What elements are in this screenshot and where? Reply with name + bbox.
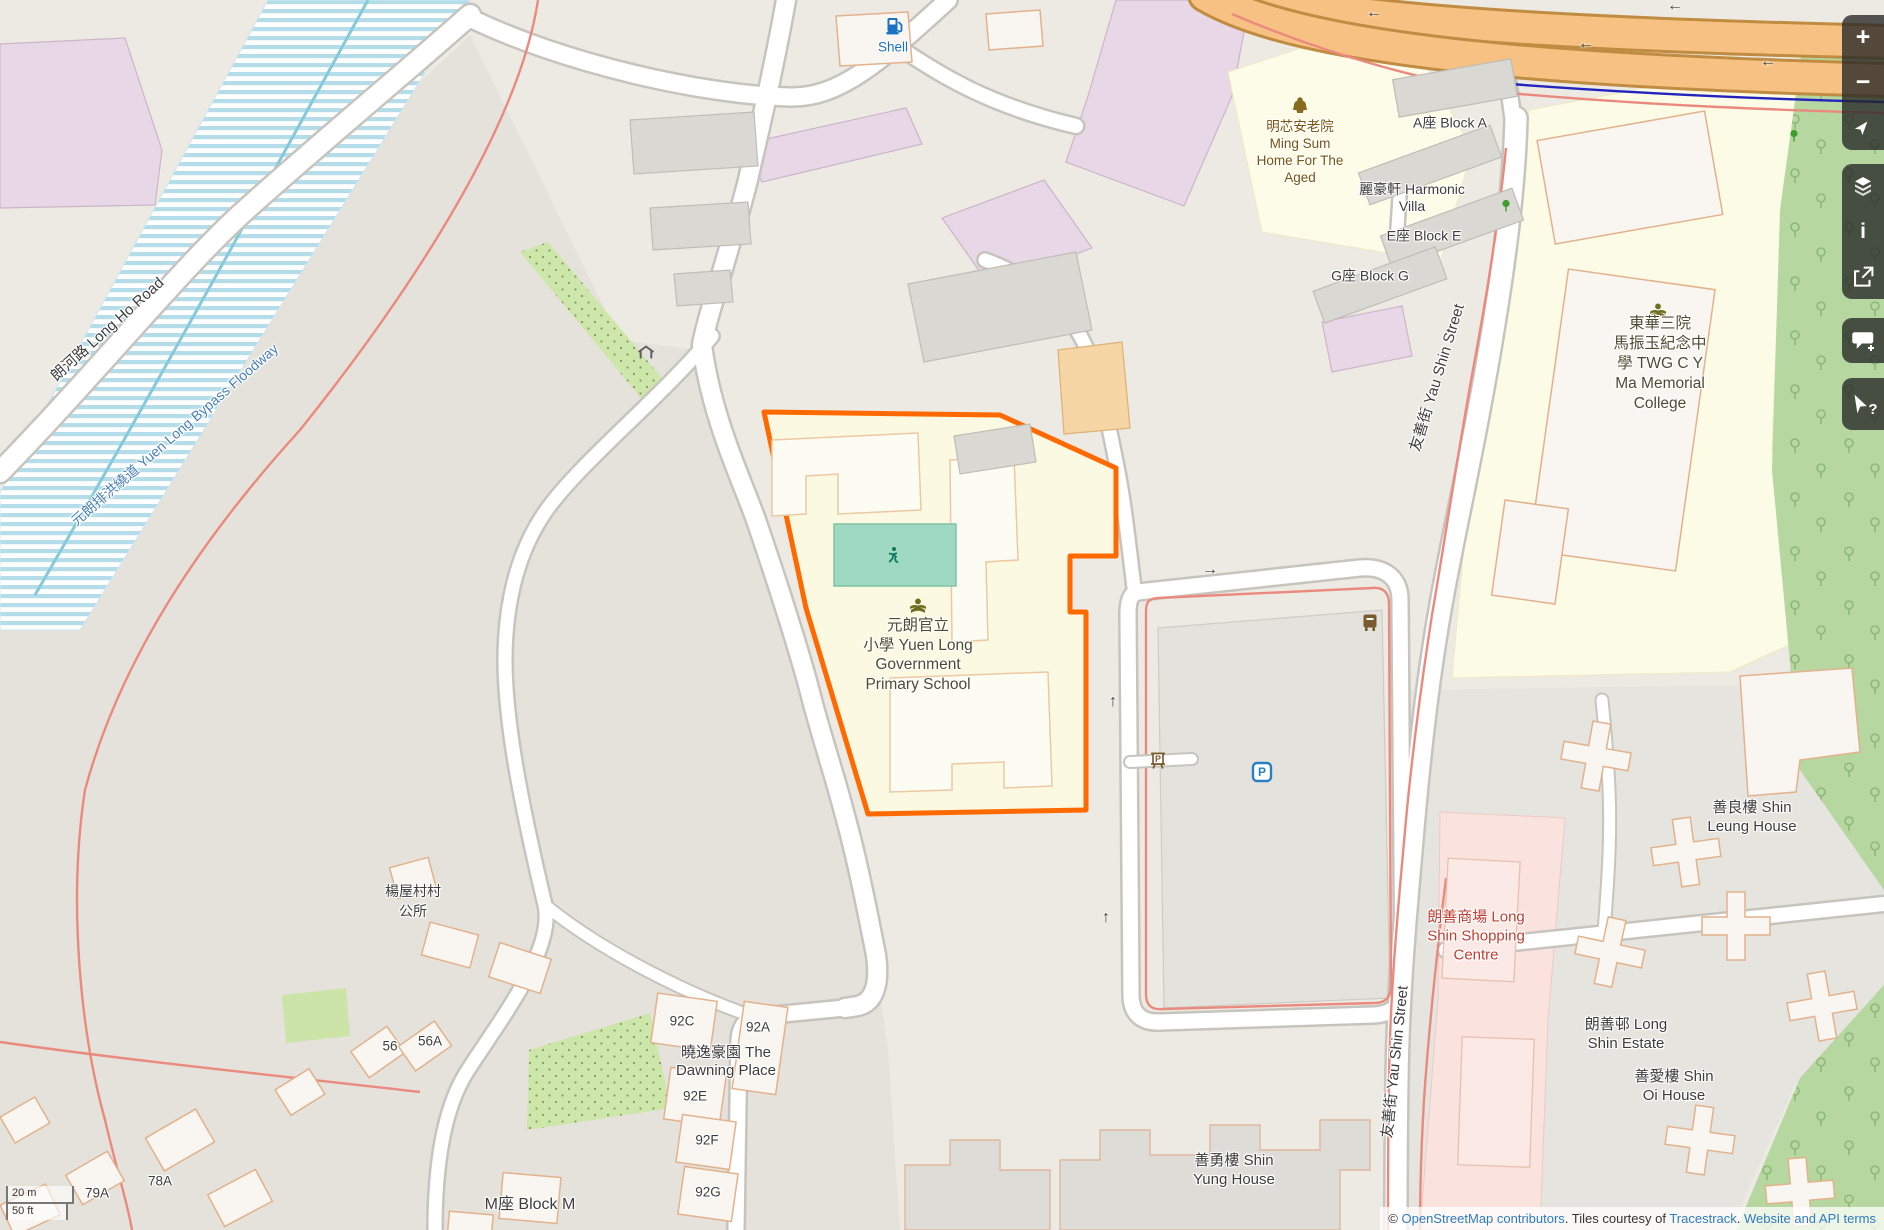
scale-imperial: 50 ft xyxy=(6,1202,68,1220)
pitch-sport-icon xyxy=(884,546,902,564)
tree-icon xyxy=(1500,200,1512,213)
layers-icon xyxy=(1849,173,1877,201)
tree-icon xyxy=(1788,130,1800,143)
layers-button[interactable] xyxy=(1842,164,1884,209)
oneway-arrow-up: ↑ xyxy=(1109,693,1117,711)
show-my-location-button[interactable] xyxy=(1842,105,1884,150)
share-button[interactable] xyxy=(1842,254,1884,299)
label-school: 元朗官立 小學 Yuen Long Government Primary Sch… xyxy=(863,616,972,694)
label-shin-oi-house: 善愛樓 Shin Oi House xyxy=(1634,1067,1713,1105)
shelter-icon xyxy=(638,345,655,360)
add-note-group xyxy=(1842,318,1884,363)
add-note-button[interactable] xyxy=(1842,318,1884,363)
label-house-78a: 78A xyxy=(148,1174,172,1191)
oneway-arrow-left: ← xyxy=(1578,35,1594,53)
nursing-home-icon xyxy=(1291,96,1309,114)
label-block-g: G座 Block G xyxy=(1331,267,1409,284)
oneway-arrow-left: ← xyxy=(1366,4,1382,22)
locate-arrow-icon xyxy=(1850,115,1876,141)
map-key-button[interactable]: i xyxy=(1842,209,1884,254)
minus-icon: − xyxy=(1856,70,1871,95)
school-icon xyxy=(909,598,927,614)
label-shin-leung-house: 善良樓 Shin Leung House xyxy=(1707,798,1796,836)
oneway-arrow-left: ← xyxy=(1760,53,1776,71)
osm-contributors-link[interactable]: OpenStreetMap contributors xyxy=(1402,1211,1565,1226)
label-block-e: E座 Block E xyxy=(1387,227,1462,244)
label-house-92f: 92F xyxy=(695,1133,718,1150)
label-house-92g: 92G xyxy=(695,1185,721,1202)
query-features-button[interactable]: ? xyxy=(1842,378,1884,430)
tiles-courtesy-text: . Tiles courtesy of xyxy=(1565,1211,1670,1226)
label-block-a: A座 Block A xyxy=(1413,114,1487,131)
zoom-control-group: + − xyxy=(1842,15,1884,150)
map-viewport: P P ← ← ← ← ↑ ↑ → 朗河路 Long Ho Road 元朗排洪繞… xyxy=(0,0,1884,1230)
oneway-arrow-up: ↑ xyxy=(1102,909,1110,927)
label-house-56: 56 xyxy=(382,1039,397,1056)
label-long-shin-shopping-centre: 朗善商場 Long Shin Shopping Centre xyxy=(1427,908,1525,965)
fuel-icon xyxy=(886,16,905,36)
label-dawning-place: 曉逸豪園 The Dawning Place xyxy=(676,1044,776,1080)
question-mark-icon: ? xyxy=(1868,402,1877,417)
share-icon xyxy=(1850,264,1876,290)
green-patch xyxy=(282,988,350,1043)
label-harmonic-villa: 麗豪軒 Harmonic Villa xyxy=(1359,181,1465,215)
label-block-m: M座 Block M xyxy=(485,1195,576,1215)
label-twg-college: 東華三院 馬振玉紀念中 學 TWG C Y Ma Memorial Colleg… xyxy=(1613,314,1706,414)
copyright-symbol: © xyxy=(1388,1211,1401,1226)
label-house-92c: 92C xyxy=(670,1014,695,1031)
period-text: . xyxy=(1737,1211,1744,1226)
label-house-56a: 56A xyxy=(418,1034,442,1051)
postbox-icon xyxy=(1361,613,1380,632)
label-house-92a: 92A xyxy=(746,1020,770,1037)
map-canvas[interactable]: P P ← ← ← ← ↑ ↑ → 朗河路 Long Ho Road 元朗排洪繞… xyxy=(0,0,1884,1230)
label-village-office: 楊屋村村 公所 xyxy=(385,881,441,921)
info-icon: i xyxy=(1860,221,1866,242)
query-features-group: ? xyxy=(1842,378,1884,430)
plus-icon: + xyxy=(1856,25,1871,50)
note-bubble-icon xyxy=(1850,327,1877,354)
map-tools-group: i xyxy=(1842,164,1884,299)
label-shell: Shell xyxy=(878,40,908,57)
label-house-79a: 79A xyxy=(85,1186,109,1203)
zoom-out-button[interactable]: − xyxy=(1842,60,1884,105)
oneway-arrow-right: → xyxy=(1202,561,1218,579)
tracestrack-link[interactable]: Tracestrack xyxy=(1669,1211,1736,1226)
parking-icon: P xyxy=(1251,761,1273,783)
parking-lot xyxy=(1158,610,1390,1008)
attribution-bar: © OpenStreetMap contributors. Tiles cour… xyxy=(1380,1207,1884,1230)
website-api-terms-link[interactable]: Website and API terms xyxy=(1744,1211,1876,1226)
parking-ticket-machine-icon: P xyxy=(1148,750,1168,770)
label-ming-sum: 明芯安老院 Ming Sum Home For The Aged xyxy=(1257,118,1344,186)
label-house-92e: 92E xyxy=(683,1089,707,1106)
scale-control: 20 m 50 ft xyxy=(6,1186,74,1220)
zoom-in-button[interactable]: + xyxy=(1842,15,1884,60)
label-shin-yung-house: 善勇樓 Shin Yung House xyxy=(1193,1151,1275,1189)
oneway-arrow-left: ← xyxy=(1667,0,1683,15)
label-long-shin-estate: 朗善邨 Long Shin Estate xyxy=(1585,1015,1668,1053)
tan-building xyxy=(1058,342,1130,434)
